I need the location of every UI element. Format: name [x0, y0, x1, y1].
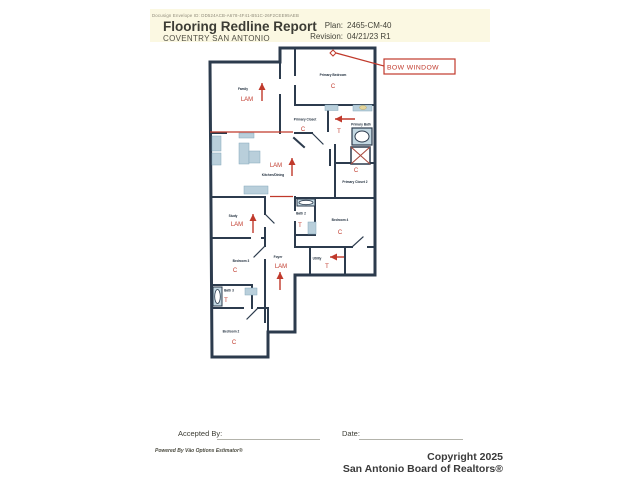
- accepted-by-line: [217, 439, 320, 440]
- date-line: [359, 439, 463, 440]
- room-label-utility: Utility: [313, 257, 322, 261]
- room-label-primary-closet-2: Primary Closet 2: [342, 180, 367, 184]
- room-label-bath-2: Bath 2: [296, 212, 306, 216]
- outer-wall: [210, 48, 375, 357]
- bow-window-callout-label: BOW WINDOW: [387, 65, 439, 72]
- code-primary-bath: T: [337, 129, 341, 135]
- code-foyer: LAM: [275, 264, 287, 270]
- room-label-kitchen-dining: Kitchen/Dining: [262, 173, 285, 177]
- room-label-study: Study: [229, 214, 238, 218]
- code-family: LAM: [241, 97, 253, 103]
- sink-icon: [360, 106, 367, 110]
- room-label-bedroom-4: Bedroom 4: [332, 218, 349, 222]
- copyright-year: Copyright 2025: [343, 452, 503, 464]
- code-bedroom-3: C: [233, 268, 238, 274]
- document-page: Docusign Envelope ID: DD524ACB-A678-4F41…: [0, 0, 640, 480]
- date-label: Date:: [342, 429, 360, 438]
- room-label-primary-bedroom: Primary Bedroom: [320, 73, 347, 77]
- room-label-primary-closet: Primary Closet: [294, 118, 317, 122]
- room-label-bedroom-2: Bedroom 2: [223, 330, 240, 334]
- room-label-foyer: Foyer: [274, 255, 283, 259]
- code-bath-2: T: [298, 223, 302, 229]
- code-primary-closet: C: [301, 127, 306, 133]
- floorplan-walls: [210, 48, 375, 357]
- code-bedroom-2: C: [232, 340, 237, 346]
- room-label-primary-bath: Primary Bath: [351, 123, 371, 127]
- accepted-by-label: Accepted By:: [178, 429, 222, 438]
- copyright-org: San Antonio Board of Realtors®: [343, 464, 503, 476]
- code-kitchen-dining: LAM: [270, 163, 282, 169]
- code-bedroom-4: C: [338, 230, 343, 236]
- powered-by-text: Powered By Väo Options Estimator®: [155, 448, 243, 454]
- room-label-bedroom-3: Bedroom 3: [233, 259, 250, 263]
- code-study: LAM: [231, 222, 243, 228]
- floorplan: BOW WINDOW Family Kitchen/Dining Study F…: [0, 0, 640, 480]
- code-utility: T: [325, 264, 329, 270]
- room-label-family: Family: [238, 87, 248, 91]
- code-primary-bedroom: C: [331, 84, 336, 90]
- code-primary-closet-2: C: [354, 168, 359, 174]
- room-label-bath-3: Bath 3: [224, 289, 234, 293]
- copyright-notice: Copyright 2025 San Antonio Board of Real…: [343, 452, 503, 475]
- code-bath-3: T: [224, 298, 228, 304]
